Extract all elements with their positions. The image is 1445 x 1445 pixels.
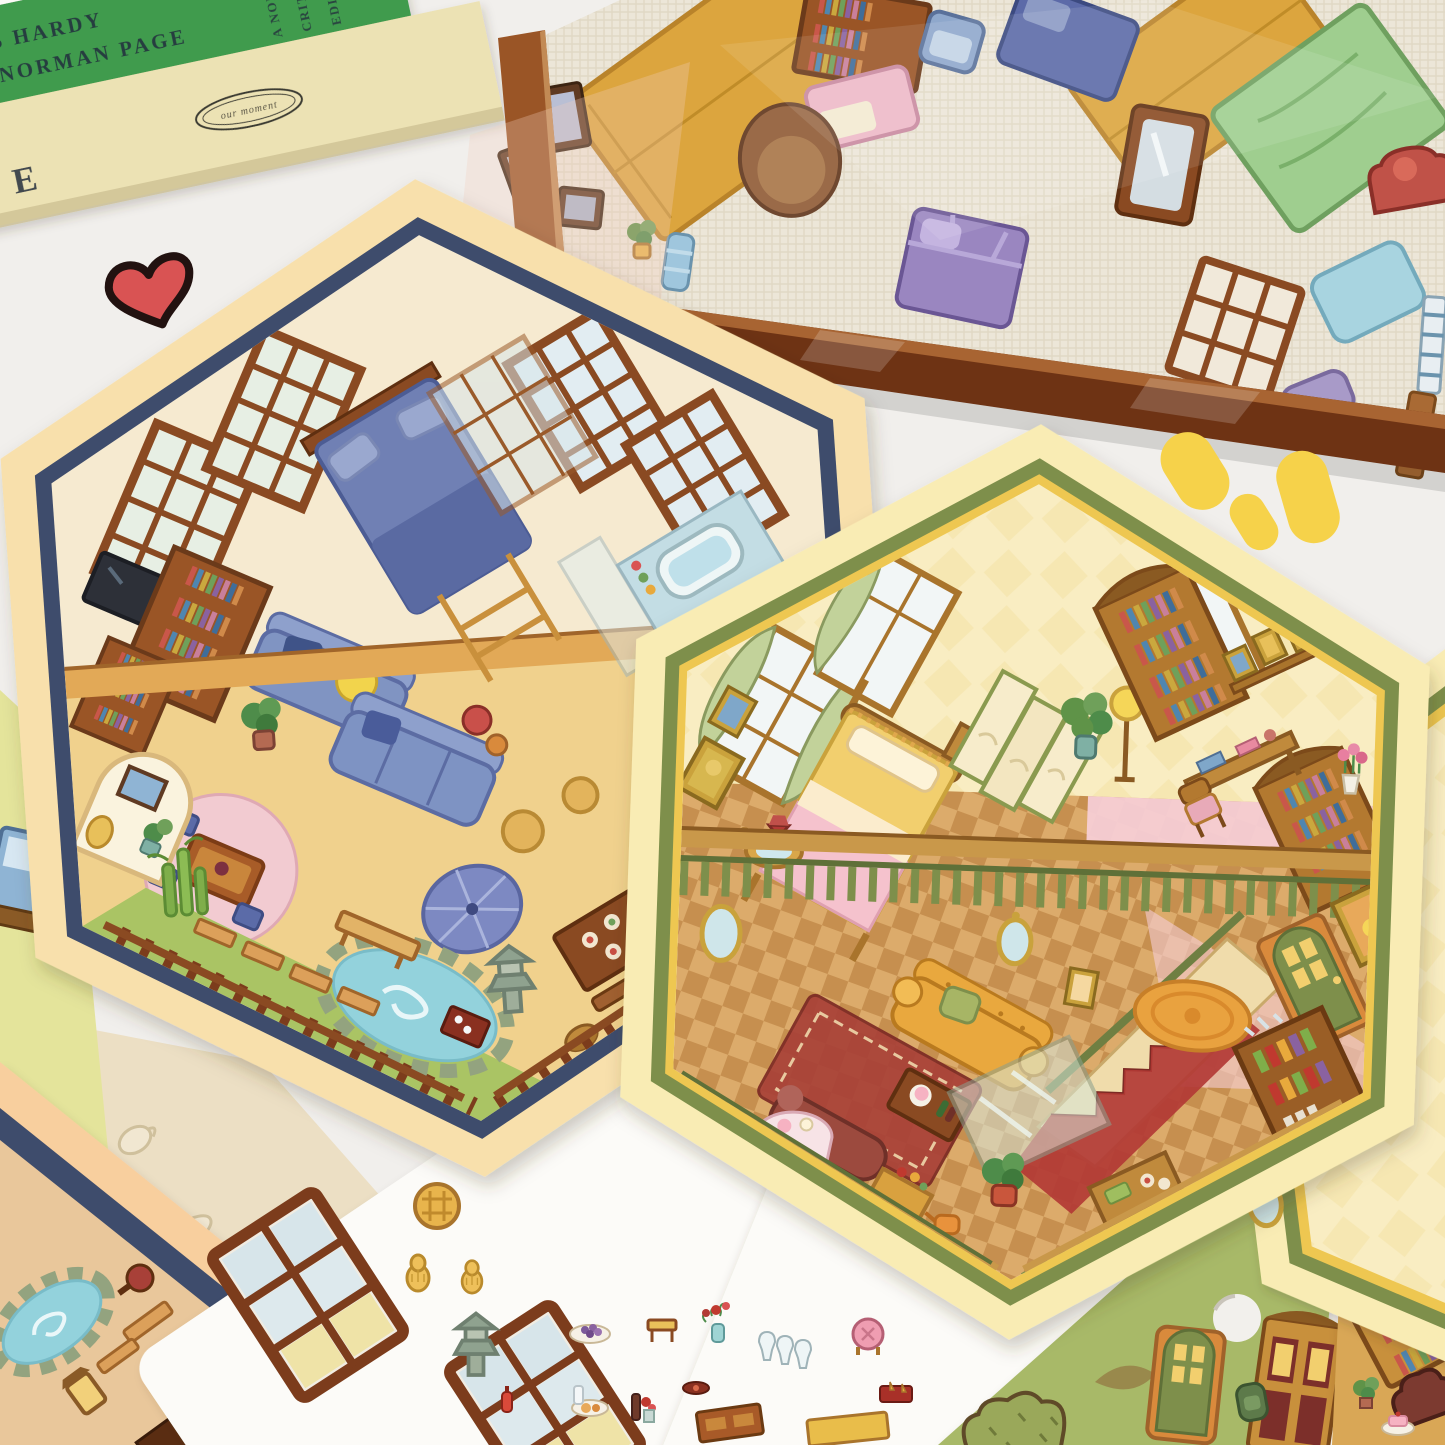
gourd-lantern-sticker [407,1255,429,1291]
grapes-plate-sticker [570,1324,610,1343]
arched-door-sticker [1146,1326,1225,1444]
waffle-cushion-sticker [415,1184,459,1228]
floor-pouf [502,810,545,853]
drinks-mat-sticker [880,1382,912,1402]
gilt-frame [1064,968,1098,1008]
oval-mirror [701,906,741,961]
red-plate-sticker [683,1382,709,1394]
photo-scene: MAS HARDY BY NORMAN PAGE A NORTON CRITIC… [0,0,1445,1445]
gourd-lantern-sticker [462,1261,482,1293]
floor-pouf [562,777,598,813]
scene-svg: MAS HARDY BY NORMAN PAGE A NORTON CRITIC… [0,0,1445,1445]
pink-stool-sticker [853,1319,883,1355]
backpack-sticker [1235,1382,1269,1422]
